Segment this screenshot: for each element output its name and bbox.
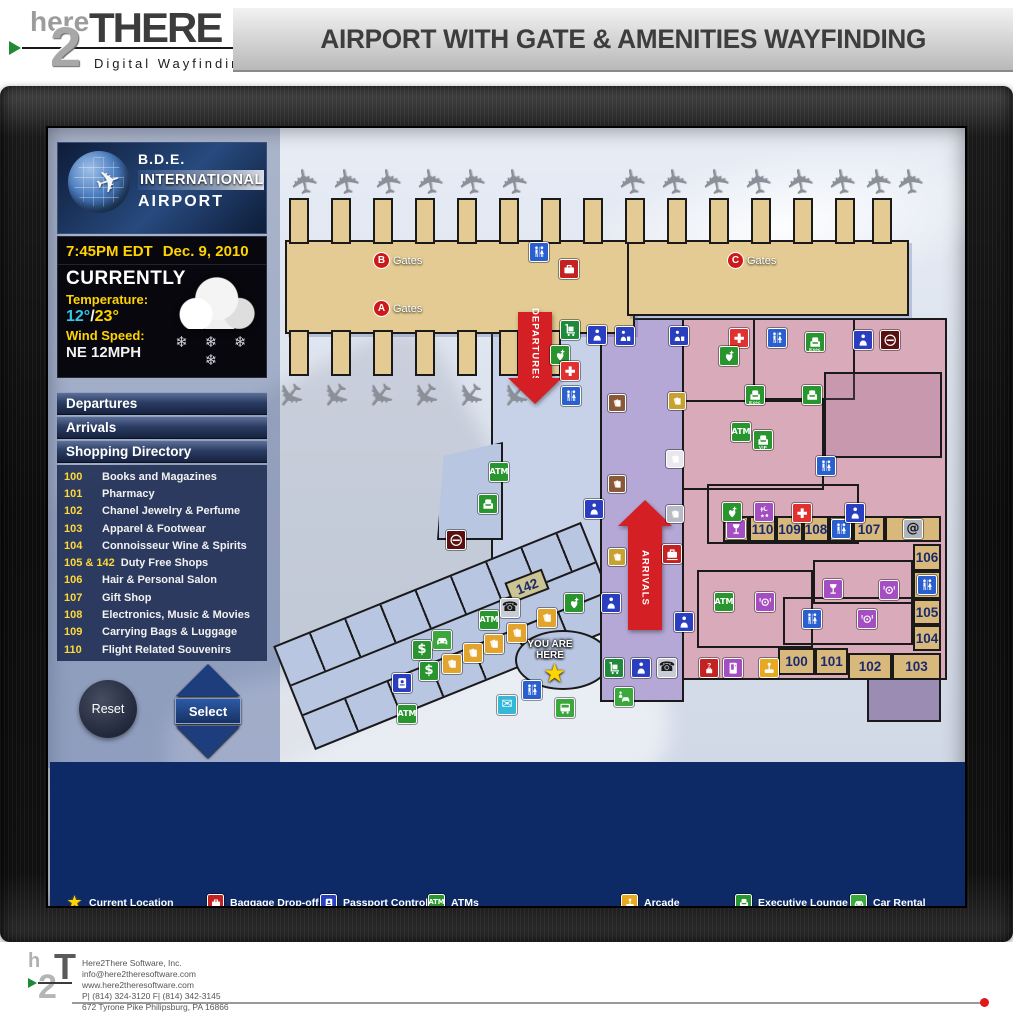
parked-plane-icon [698,164,736,198]
passport-control-icon [392,673,412,693]
logo-two: 2 [50,14,81,79]
security-icon [674,612,694,632]
select-down-arrow-icon[interactable] [176,726,240,758]
luggage-carts-icon [604,658,624,678]
atm-icon: ATM [397,704,417,724]
legend-label: ATMs [451,897,479,909]
you-are-here-star-icon [543,660,566,686]
desk-brown-icon [608,475,626,493]
sidebar-item-arrivals[interactable]: Arrivals [57,416,267,439]
shop-amenity-block[interactable]: @ [885,516,941,542]
banking-icon: $ [419,661,439,681]
parked-plane-icon [656,164,694,198]
directory-item[interactable]: 104Connoisseur Wine & Spirits [57,537,267,554]
page-header: here 2 THERE Digital Wayfinding AIRPORT … [0,0,1013,86]
luggage-carts-icon [560,320,580,340]
parked-plane-icon [412,164,450,198]
gate-finger [331,198,351,244]
button-area: Reset Select [57,662,267,762]
gate-finger [373,330,393,376]
legend-label: Car Rental [873,897,926,909]
footer-website[interactable]: www.here2theresoftware.com [82,980,229,991]
lounge-room-zone [437,442,503,540]
banking-icon: $ [412,640,432,660]
arcade-icon [621,894,638,908]
map-room [824,372,942,458]
gates-concourse-left [285,240,635,334]
parked-plane-icon [357,373,401,416]
shopping-directory-list: 100Books and Magazines101Pharmacy102Chan… [57,465,267,661]
footer-contact-block: Here2There Software, Inc. info@here2ther… [82,958,229,1013]
directory-item[interactable]: 108Electronics, Music & Movies [57,606,267,623]
current-location-icon: ★ [66,894,83,908]
airport-name-line2: INTERNATIONAL [138,170,264,190]
logo-arrow-icon [9,41,21,55]
baggage-dropoff-icon [559,259,579,279]
gate-finger [541,198,561,244]
security-icon [601,593,621,613]
legend-item-passport-control: Passport Control [320,894,428,908]
footer-phones: P| (814) 324-3120 F| (814) 342-3145 [82,991,229,1002]
title-banner: AIRPORT WITH GATE & AMENITIES WAYFINDING [233,8,1013,72]
legend-label: Baggage Drop-off [230,897,319,909]
directory-item[interactable]: 106Hair & Personal Salon [57,572,267,589]
shop-103[interactable]: 103 [892,653,941,680]
restrooms-icon: VIP [753,430,773,450]
parked-plane-icon [496,164,534,198]
defibrillator-icon [719,346,739,366]
airport-logo-panel: ✈ B.D.E. INTERNATIONAL AIRPORT [57,142,267,234]
security-icon [853,330,873,350]
bar-icon [726,519,746,539]
logo-there: THERE [89,4,221,52]
map-legend: ★Current LocationBusiness Class Check-in… [50,762,967,908]
airport-name-line3: AIRPORT [138,193,264,211]
parked-plane-icon [614,164,652,198]
shop-102[interactable]: 102 [848,653,892,680]
snowflakes-icon [168,333,260,369]
terminal-map: DEPARTURES ARRIVALS YOU ARE HERE BGatesA… [267,142,962,762]
gate-finger [373,198,393,244]
waiting-area-icon [767,328,787,348]
here2there-logo: here 2 THERE Digital Wayfinding [6,2,256,84]
legend-item-current-location: ★Current Location [66,894,174,908]
shop-100[interactable]: 100 [778,648,815,675]
page-title: AIRPORT WITH GATE & AMENITIES WAYFINDING [320,24,926,55]
parked-plane-icon [454,164,492,198]
bar-icon [823,579,843,599]
internet-icon: @ [903,519,923,539]
parked-plane-icon [782,164,820,198]
dining-icon [755,592,775,612]
arrivals-arrow: ARRIVALS [618,500,672,630]
legend-label: Arcade [644,897,680,909]
parked-plane-icon [447,373,491,416]
postal-icon: ✉ [497,695,517,715]
parked-plane-icon [740,164,778,198]
gate-finger [457,198,477,244]
legend-item-baggage-dropoff: Baggage Drop-off [207,894,319,908]
smoking-icon [446,530,466,550]
public-phones-icon: ☎ [500,598,520,618]
directory-item[interactable]: 102Chanel Jewelry & Perfume [57,503,267,520]
public-phones-icon: ☎ [657,658,677,678]
valet-icon [614,687,634,707]
gate-finger [751,198,771,244]
shuttle-icon [555,698,575,718]
checkin-business-icon [463,643,483,663]
desk-brown-icon [608,394,626,412]
gate-finger [872,198,892,244]
legend-item-exec-lounge: ExecExecutive Lounge [735,894,848,908]
security-icon [631,658,651,678]
restroom-icon [529,242,549,262]
footer-arrow-icon [28,978,37,988]
gate-finger [667,198,687,244]
checkin-business-icon [484,634,504,654]
exec-lounge-icon: Exec [735,894,752,908]
legend-item-atm: ATMATMs [428,894,479,908]
arcade-icon [759,658,779,678]
vip-lounge-icon [478,494,498,514]
first-aid-icon [560,361,580,381]
cloud-icon [172,277,258,329]
smoking-icon [880,330,900,350]
directory-item[interactable]: 103Apparel & Footwear [57,520,267,537]
legend-label: Executive Lounge [758,897,848,909]
clock-time: 7:45PM EDT [66,243,153,260]
first-aid-icon [729,328,749,348]
parked-plane-icon [892,164,930,198]
gate-label-c: CGates [727,252,776,269]
directory-item[interactable]: 100Books and Magazines [57,468,267,485]
restroom-icon [522,680,542,700]
gate-finger [793,198,813,244]
restroom-icon [561,386,581,406]
footer-email[interactable]: info@here2theresoftware.com [82,969,229,980]
chapel-icon [754,502,774,522]
gate-finger [709,198,729,244]
atm-icon: ATM [479,610,499,630]
select-up-arrow-icon[interactable] [176,664,240,696]
gate-finger [289,330,309,376]
reset-button[interactable]: Reset [79,680,137,738]
directory-item[interactable]: 107Gift Shop [57,589,267,606]
security-icon [587,325,607,345]
shop-104[interactable]: 104 [913,625,941,651]
restroom-icon [816,456,836,476]
exec-lounge-icon: Exec [745,385,765,405]
sidebar: ✈ B.D.E. INTERNATIONAL AIRPORT 7:45PM ED… [57,142,267,762]
airport-name-line1: B.D.E. [138,151,264,167]
directory-item[interactable]: 105 & 142Duty Free Shops [57,554,267,571]
weather-panel: 7:45PM EDT Dec. 9, 2010 CURRENTLY Temper… [57,236,267,378]
footer-rule [72,1002,984,1004]
sidebar-item-departures[interactable]: Departures [57,392,267,415]
car-rental-icon [432,630,452,650]
select-button[interactable]: Select [175,664,241,758]
baggage-pickup-icon [662,544,682,564]
parked-plane-icon [328,164,366,198]
legend-item-arcade: Arcade [621,894,680,908]
restroom-icon [802,609,822,629]
vip-lounge-icon [802,385,822,405]
desk-white-icon [666,450,684,468]
security-icon [584,499,604,519]
shop-amenity-block[interactable] [913,571,941,599]
violet-zone [867,678,941,722]
page-footer: h2T Here2There Software, Inc. info@here2… [0,942,1013,1017]
legend-label: Current Location [89,897,174,909]
footer-company: Here2There Software, Inc. [82,958,229,969]
restroom-icon [917,575,937,595]
checkin-business-icon [442,654,462,674]
parked-plane-icon [312,373,356,416]
shop-106[interactable]: 106 [913,544,941,571]
atm-icon: ATM [489,462,509,482]
legend-item-car-rental: Car Rental [850,894,926,908]
car-rental-icon [850,894,867,908]
desk-gold-icon [668,392,686,410]
security-icon [845,503,865,523]
gate-finger [583,198,603,244]
first-aid-icon [792,503,812,523]
gate-finger [415,198,435,244]
gate-label-a: AGates [373,300,422,317]
gate-finger [331,330,351,376]
parked-plane-icon [370,164,408,198]
atm-icon: ATM [731,422,751,442]
gate-finger [835,198,855,244]
directory-item[interactable]: 109Carrying Bags & Luggage [57,624,267,641]
legend-label: Passport Control [343,897,428,909]
defibrillator-icon [722,502,742,522]
directory-item[interactable]: 110Flight Related Souvenirs [57,641,267,658]
exec-lounge-icon: Exec [805,332,825,352]
gate-label-b: BGates [373,252,422,269]
parked-plane-icon [267,373,311,416]
clock-date: Dec. 9, 2010 [163,243,249,260]
dining-icon [857,609,877,629]
dining-icon [879,580,899,600]
parked-plane-icon [402,373,446,416]
shop-101[interactable]: 101 [815,648,848,675]
baggage-dropoff-icon [207,894,224,908]
h2t-footer-logo: h2T [26,950,82,1010]
logo-tagline: Digital Wayfinding [94,56,252,71]
checkin-business-icon [537,608,557,628]
kiosk-screen: ✈ B.D.E. INTERNATIONAL AIRPORT 7:45PM ED… [46,126,967,908]
defibrillator-icon [564,593,584,613]
gate-finger [289,198,309,244]
directory-item[interactable]: 101Pharmacy [57,485,267,502]
shop-105[interactable]: 105 [913,599,941,625]
passport-control-icon [320,894,337,908]
vending-icon [723,658,743,678]
desk-gold-icon [608,548,626,566]
gate-finger [457,330,477,376]
footer-red-dot-icon [980,998,989,1007]
atm-icon: ATM [428,894,445,908]
gate-finger [625,198,645,244]
carryon-checkpoint-icon [669,326,689,346]
desk-silver-icon [666,505,684,523]
carryon-checkpoint-icon [615,326,635,346]
parked-plane-icon [286,164,324,198]
footer-address: 672 Tyrone Pike Philipsburg, PA 16866 [82,1002,229,1013]
sidebar-item-shopping-directory[interactable]: Shopping Directory [57,440,267,463]
gate-finger [415,330,435,376]
sidebar-menu: DeparturesArrivalsShopping Directory [57,392,267,464]
atm-icon: ATM [714,592,734,612]
gate-finger [499,198,519,244]
lost-found-icon [699,658,719,678]
